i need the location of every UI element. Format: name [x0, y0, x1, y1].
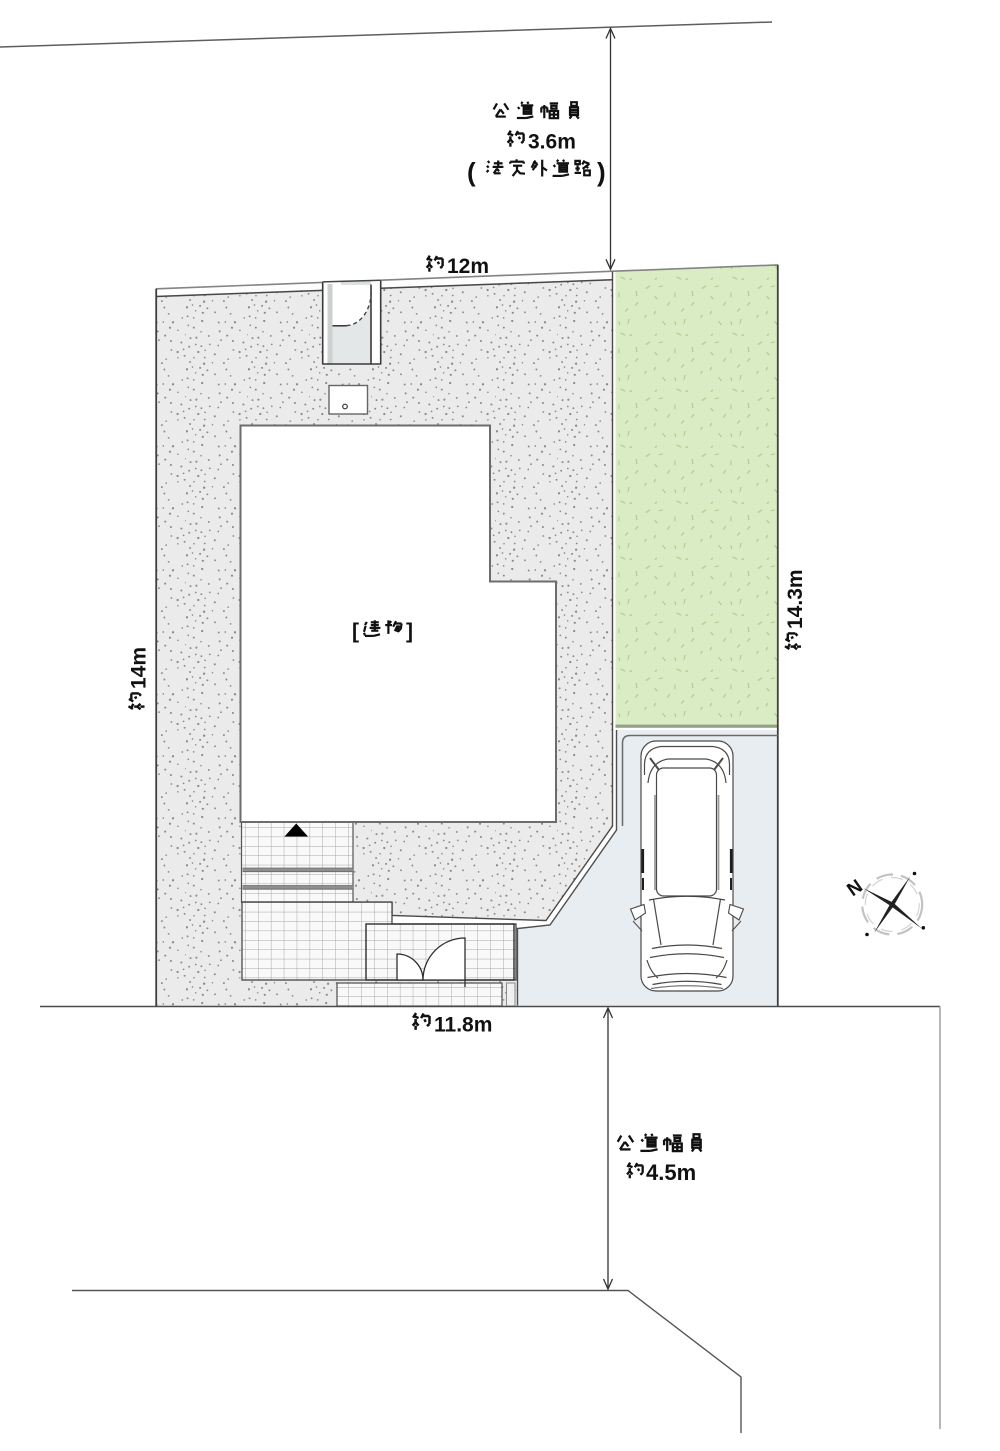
svg-text:(: ( — [467, 157, 476, 187]
svg-text:4.5m: 4.5m — [646, 1160, 696, 1185]
svg-text:): ) — [597, 157, 606, 187]
svg-text:14.3m: 14.3m — [784, 569, 807, 629]
svg-text:14m: 14m — [128, 647, 151, 689]
svg-text:[: [ — [352, 620, 359, 643]
svg-text:3.6m: 3.6m — [528, 131, 576, 154]
svg-text:12m: 12m — [447, 255, 489, 278]
svg-text:11.8m: 11.8m — [434, 1014, 492, 1037]
svg-text:]: ] — [406, 620, 413, 643]
